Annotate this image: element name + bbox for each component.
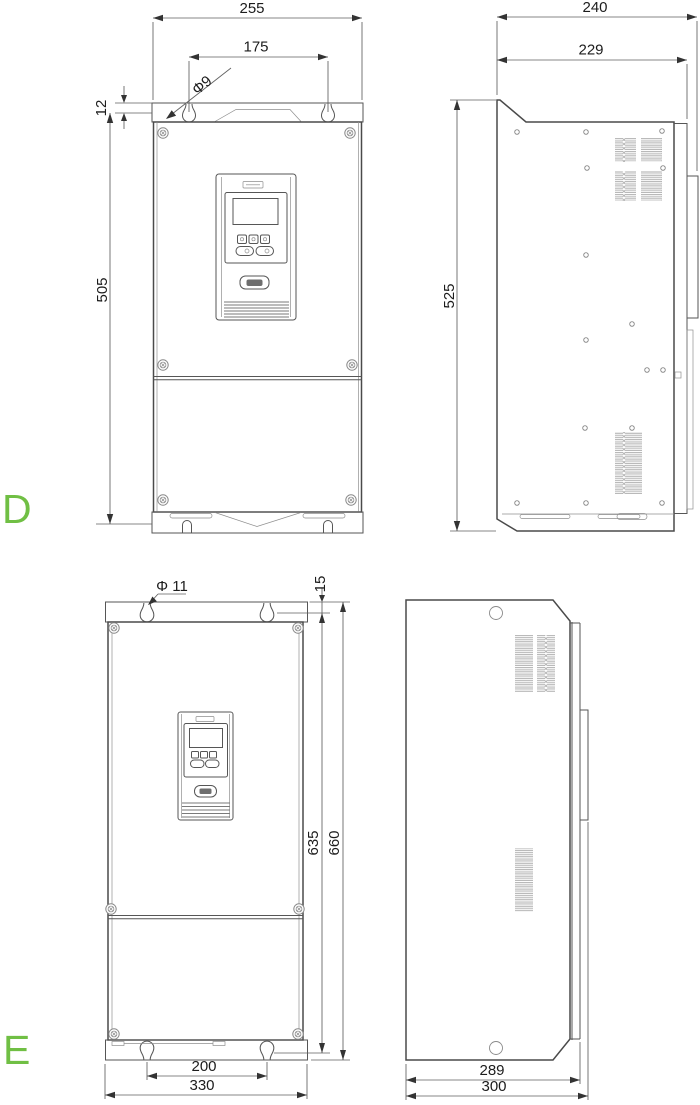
e-front-outline [106, 602, 308, 1060]
dim-label: 240 [582, 0, 607, 16]
view-d-front: 255 175 Φ9 12 505 [93, 0, 363, 533]
dim-d-side-height: 525 [441, 100, 496, 531]
d-top-handle [215, 110, 301, 122]
dim-label: 660 [326, 830, 343, 855]
keypad-button [201, 752, 208, 759]
screw [109, 623, 119, 633]
mounting-keyhole [140, 603, 154, 622]
keypad-button [210, 752, 217, 759]
hole [490, 607, 503, 620]
dim-label: 330 [189, 1077, 214, 1094]
dim-e-front-hole-diameter: Φ 11 [148, 578, 188, 605]
screw [158, 128, 168, 138]
dim-d-front-hole-spacing: 175 [189, 39, 328, 113]
d-side-front-cover [674, 124, 687, 514]
screw [294, 904, 304, 914]
screw [158, 360, 168, 370]
screw [293, 1029, 303, 1039]
dim-label: 229 [578, 42, 603, 59]
screw [345, 128, 355, 138]
dim-label: 635 [305, 830, 322, 855]
technical-drawing-page: 255 175 Φ9 12 505 [0, 0, 700, 1105]
dim-label: 525 [441, 283, 458, 308]
screw [346, 495, 356, 505]
dim-label: 289 [479, 1062, 504, 1079]
e-top-mounting-plate [106, 602, 308, 622]
keypad-latch [196, 717, 214, 722]
view-e-side: 289 300 [406, 600, 588, 1100]
keypad-d [216, 174, 296, 320]
screw [347, 360, 357, 370]
dim-label: 505 [94, 277, 111, 302]
d-side-outline [497, 100, 698, 531]
dim-e-side-total-depth: 300 [406, 822, 588, 1100]
d-side-vents [615, 138, 662, 494]
dim-label: 12 [93, 100, 110, 117]
e-side-vents [515, 635, 555, 912]
engineering-drawing: 255 175 Φ9 12 505 [0, 0, 700, 1105]
keypad-button [261, 235, 270, 244]
e-side-front-cover [570, 622, 580, 1040]
dim-label: 255 [239, 0, 264, 17]
d-front-outline [152, 103, 363, 533]
dim-d-front-hole-diameter: Φ9 [166, 68, 231, 119]
dim-label: 200 [191, 1058, 216, 1075]
screw [158, 495, 168, 505]
keypad-button [249, 235, 258, 244]
dim-label: 15 [312, 576, 329, 593]
dim-d-front-plate-offset: 12 [93, 86, 152, 129]
view-d-side: 240 229 525 [441, 0, 698, 531]
mounting-keyhole [260, 603, 274, 622]
keypad-button [192, 752, 199, 759]
e-body [108, 622, 303, 1040]
screw [109, 1029, 119, 1039]
screw [106, 904, 116, 914]
keypad-button [206, 760, 220, 768]
d-body-seam [154, 377, 362, 380]
keypad-display [233, 199, 278, 225]
d-side-body [497, 100, 674, 531]
screw [293, 623, 303, 633]
dim-d-front-height: 505 [94, 113, 152, 524]
dim-label: Φ9 [189, 73, 215, 99]
view-e-front: Φ 11 15 635 660 200 330 [105, 576, 350, 1099]
keypad-panel [184, 724, 228, 778]
e-side-keypad-bulge [580, 710, 588, 820]
d-side-keypad-bulge [687, 176, 698, 318]
section-label-e: E [3, 1027, 30, 1073]
keypad-vents [224, 302, 289, 317]
mounting-keyhole [140, 1041, 154, 1060]
dim-e-front-plate-offset: 15 [277, 576, 350, 613]
e-side-outline [406, 600, 588, 1060]
hole [490, 1042, 503, 1055]
dim-label: 300 [481, 1078, 506, 1095]
keypad-button [238, 235, 247, 244]
dim-d-side-total-depth: 240 [497, 0, 697, 171]
d-bottom-notches [183, 521, 333, 534]
dim-e-front-height-to-holes: 635 [274, 613, 330, 1053]
e-bottom-plate [106, 1040, 308, 1060]
keypad-e [178, 712, 233, 820]
dim-d-side-body-depth: 229 [497, 42, 687, 120]
keypad-display [190, 729, 223, 748]
e-body-seam [108, 916, 303, 919]
keypad-vents [182, 803, 230, 817]
dim-label: 175 [243, 39, 268, 56]
section-label-d: D [2, 486, 32, 532]
keypad-button [191, 760, 205, 768]
dim-label: Φ 11 [156, 578, 188, 595]
mounting-keyhole [260, 1041, 274, 1060]
